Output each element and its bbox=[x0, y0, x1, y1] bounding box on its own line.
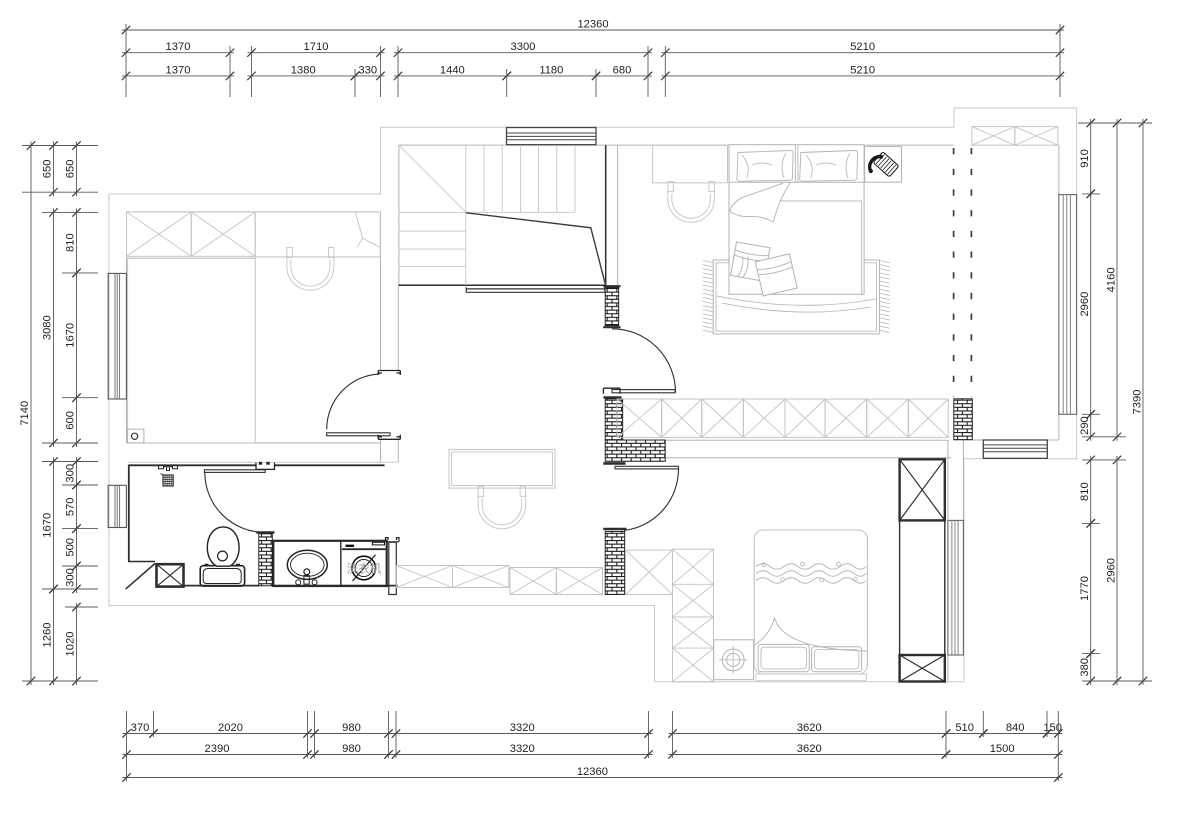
svg-text:12360: 12360 bbox=[577, 18, 608, 30]
svg-text:510: 510 bbox=[955, 722, 974, 734]
svg-text:7390: 7390 bbox=[1132, 390, 1144, 415]
svg-text:1020: 1020 bbox=[65, 632, 77, 657]
svg-text:5210: 5210 bbox=[850, 64, 875, 76]
svg-text:3320: 3320 bbox=[510, 743, 535, 755]
svg-text:650: 650 bbox=[42, 160, 54, 179]
svg-text:600: 600 bbox=[65, 411, 77, 430]
svg-text:1500: 1500 bbox=[990, 743, 1015, 755]
svg-text:650: 650 bbox=[65, 160, 77, 179]
svg-text:3300: 3300 bbox=[511, 41, 536, 53]
svg-text:910: 910 bbox=[1079, 149, 1091, 168]
svg-text:810: 810 bbox=[1079, 482, 1091, 501]
svg-text:370: 370 bbox=[131, 722, 150, 734]
svg-text:980: 980 bbox=[342, 743, 361, 755]
svg-text:2390: 2390 bbox=[205, 743, 230, 755]
svg-text:1380: 1380 bbox=[291, 64, 316, 76]
svg-text:3320: 3320 bbox=[510, 722, 535, 734]
svg-text:1670: 1670 bbox=[42, 513, 54, 538]
svg-text:300: 300 bbox=[65, 464, 77, 483]
svg-text:5210: 5210 bbox=[850, 41, 875, 53]
svg-text:7140: 7140 bbox=[19, 401, 31, 426]
svg-text:980: 980 bbox=[342, 722, 361, 734]
svg-text:2020: 2020 bbox=[218, 722, 243, 734]
svg-text:380: 380 bbox=[1079, 658, 1091, 677]
svg-text:680: 680 bbox=[613, 64, 632, 76]
svg-text:840: 840 bbox=[1006, 722, 1025, 734]
svg-text:2960: 2960 bbox=[1079, 292, 1091, 317]
svg-text:290: 290 bbox=[1079, 416, 1091, 435]
svg-text:4160: 4160 bbox=[1106, 267, 1118, 292]
svg-text:1180: 1180 bbox=[539, 64, 563, 76]
svg-text:1370: 1370 bbox=[166, 64, 191, 76]
svg-text:12360: 12360 bbox=[577, 766, 608, 778]
svg-text:2960: 2960 bbox=[1106, 558, 1118, 583]
svg-text:500: 500 bbox=[65, 538, 77, 557]
svg-text:1670: 1670 bbox=[65, 323, 77, 348]
svg-text:3620: 3620 bbox=[797, 743, 822, 755]
svg-text:3080: 3080 bbox=[42, 315, 54, 340]
svg-text:1370: 1370 bbox=[166, 41, 191, 53]
svg-text:1710: 1710 bbox=[304, 41, 329, 53]
svg-text:330: 330 bbox=[358, 64, 377, 76]
svg-text:810: 810 bbox=[65, 233, 77, 252]
svg-text:1440: 1440 bbox=[440, 64, 465, 76]
svg-text:300: 300 bbox=[65, 568, 77, 587]
svg-text:150: 150 bbox=[1043, 722, 1062, 734]
svg-text:洗衣机: 洗衣机 bbox=[347, 562, 382, 576]
svg-text:1770: 1770 bbox=[1079, 576, 1091, 601]
svg-text:570: 570 bbox=[65, 497, 77, 516]
svg-text:3620: 3620 bbox=[797, 722, 822, 734]
svg-text:1260: 1260 bbox=[42, 623, 54, 648]
